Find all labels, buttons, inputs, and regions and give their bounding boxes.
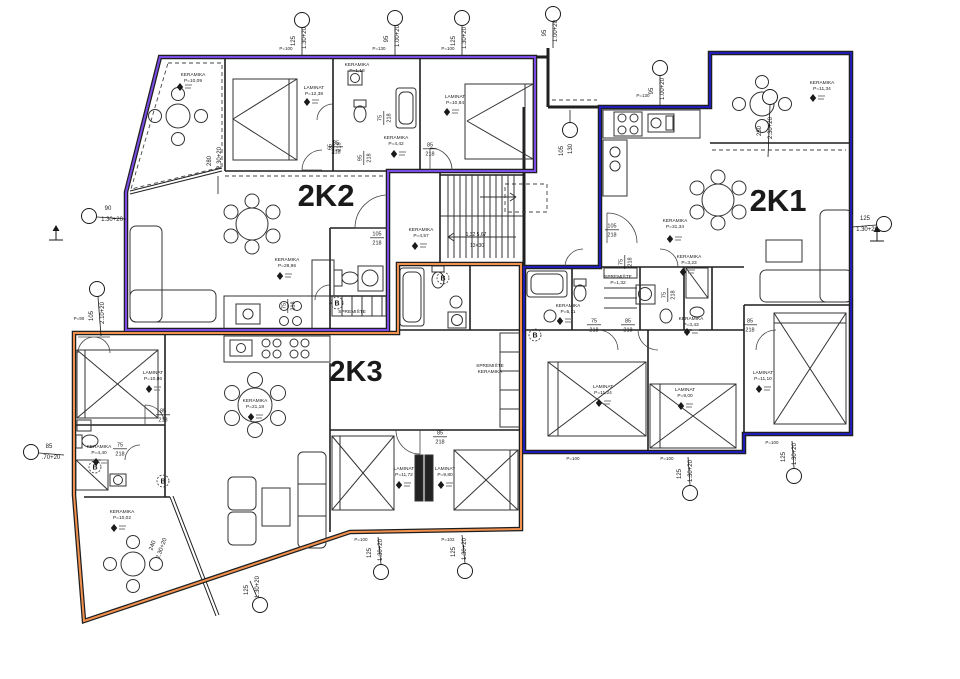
room-finish: KERAMIKA [679, 316, 705, 322]
door-size-label: 75218 [662, 288, 677, 302]
floor-symbol-icon [557, 317, 563, 325]
wardrobe [425, 455, 433, 501]
chair [266, 229, 280, 243]
room-label: KERAMIKAP=28,96 [275, 257, 301, 280]
svg-text:B: B [440, 276, 445, 283]
room-label: KERAMIKAP=1,18 [345, 62, 371, 74]
chair [756, 76, 769, 89]
chair [711, 170, 725, 184]
bed [233, 79, 297, 160]
room-label: LAMINATP=12,38 [304, 85, 325, 106]
marker-circle-icon [253, 598, 268, 613]
stairs-text: 1,32 5,67 [466, 232, 487, 238]
svg-text:75: 75 [378, 115, 384, 121]
room-area: P=1,32 [610, 280, 626, 286]
door-arc [660, 249, 678, 267]
room-finish: KERAMIKA [810, 80, 836, 86]
double-door-arcs [78, 337, 110, 353]
dimension-text: 105 [89, 310, 95, 321]
chair [195, 110, 208, 123]
door-arc [565, 249, 583, 267]
chair [127, 536, 140, 549]
armchair [228, 477, 256, 510]
svg-text:218: 218 [435, 440, 444, 446]
room-finish: KERAMIKA [345, 62, 371, 68]
wall-length-label: P=100 [765, 440, 779, 445]
marker-circle-icon [295, 13, 310, 28]
room-area: P=4,42 [388, 141, 404, 147]
room-area: P=11,10 [754, 376, 772, 382]
stove-burner [262, 350, 270, 358]
dimension-text: 1.30+20 [101, 217, 124, 223]
door-arc [317, 104, 333, 120]
svg-text:218: 218 [291, 301, 297, 310]
dimension-text: 2.30+20 [156, 537, 169, 560]
svg-text:218: 218 [337, 142, 343, 151]
room-area: P=5,11 [561, 309, 576, 315]
chair [224, 205, 238, 219]
door-arc [355, 195, 388, 228]
toilet [334, 270, 358, 286]
chair [149, 110, 162, 123]
dimension-text: 95 [542, 29, 548, 36]
floor-symbol-icon [438, 481, 444, 489]
room-finish: KERAMIKA [409, 227, 435, 233]
dimension-text: 1.30+20 [462, 537, 468, 560]
room-label: SPREMIŠTEKERAMIKA [476, 362, 504, 375]
washing-machine [448, 312, 466, 328]
door-size-label: 85218 [433, 431, 447, 446]
floor-plan-drawing: 2K12K22K3 KERAMIKAP=10,09LAMINATP=12,38K… [0, 0, 960, 679]
chair [224, 229, 238, 243]
door-arc [125, 445, 140, 460]
svg-text:218: 218 [589, 328, 598, 334]
room-finish: KERAMIKA [110, 509, 136, 515]
dining-table [702, 184, 734, 216]
dimension-text: 1.30+20 [688, 459, 694, 482]
svg-text:B: B [160, 479, 165, 486]
door-size-label: 105218 [370, 232, 384, 247]
closet-shelves [500, 333, 522, 427]
dimension-text: 1.30+20 [378, 538, 384, 561]
room-area: P=10,86 [144, 376, 162, 382]
stove-burner [262, 339, 270, 347]
floor-symbol-icon [111, 524, 117, 532]
svg-text:218: 218 [158, 418, 167, 424]
room-label: LAMINATP=11,72 [394, 466, 415, 489]
room-finish: LAMINAT [143, 370, 164, 376]
tall-unit [603, 140, 627, 196]
wall-length-label: P=102 [441, 537, 455, 542]
marker-circle-icon [787, 469, 802, 484]
room-label: LAMINATP=10,84 [444, 94, 465, 116]
door-arc [598, 330, 618, 350]
dimension-text: 280 [207, 155, 213, 166]
dimension-text: 1.00+20 [660, 77, 666, 100]
window-marker: 951.00+20 [542, 7, 561, 49]
chair [690, 205, 704, 219]
chair [711, 216, 725, 230]
floor-symbol-icon [146, 385, 152, 393]
svg-text:218: 218 [623, 328, 632, 334]
svg-text:B: B [334, 301, 339, 308]
marker-circle-icon [90, 282, 105, 297]
svg-text:75: 75 [282, 303, 288, 309]
chair [271, 411, 286, 426]
dimension-text: 125 [291, 35, 297, 46]
dimension-text: 1.30+20 [302, 26, 308, 49]
washbasin [544, 310, 556, 322]
marker-circle-icon [683, 486, 698, 501]
room-label: SPREMIŠTE [338, 308, 366, 315]
floor-symbol-icon [667, 235, 673, 243]
dimension-text: 2.30+20 [768, 116, 774, 139]
dimension-text: 240 [149, 539, 158, 551]
stove-burner [273, 350, 281, 358]
room-area: P=10,02 [113, 515, 131, 521]
room-finish: LAMINAT [435, 466, 456, 472]
chair [245, 194, 259, 208]
stairs-texts: 1,32 5,6713×30 [466, 232, 487, 249]
room-finish: LAMINAT [445, 94, 466, 100]
room-area: P=10,09 [184, 78, 202, 84]
toilet [354, 100, 366, 122]
room-label: KERAMIKAP=31,34 [663, 218, 689, 243]
door-arc [302, 150, 322, 170]
chair [127, 580, 140, 593]
wall-length-label: P=130 [372, 46, 386, 51]
room-finish: KERAMIKA [556, 303, 582, 309]
dimension-text: 125 [451, 35, 457, 46]
room-area: P=10,84 [446, 100, 464, 106]
door-size-label: 75218 [587, 319, 601, 334]
room-label: KERAMIKAP=3,23 [677, 254, 703, 276]
dashed-lines [131, 63, 846, 212]
door-size-label: 95218 [358, 151, 373, 165]
room-finish: KERAMIKA [87, 444, 113, 450]
level-marker-icon [49, 225, 63, 240]
dimension-text: 90 [105, 206, 112, 212]
dimension-text: 1.30+20 [462, 26, 468, 49]
toilet [660, 309, 672, 323]
terrace-table [121, 552, 145, 576]
floor-symbol-icon [412, 242, 418, 250]
marker-circle-icon [374, 565, 389, 580]
dimension-text: 85 [46, 444, 53, 450]
svg-text:218: 218 [372, 241, 381, 247]
wall-length-label: P=100 [354, 537, 368, 542]
chair [733, 98, 746, 111]
dimension-text: 95 [649, 87, 655, 94]
unit-label-2k1: 2K1 [750, 183, 807, 218]
unit-labels: 2K12K22K3 [298, 178, 807, 388]
stove-burner [273, 339, 281, 347]
room-label: SPREMIŠTEP=1,32 [604, 273, 632, 286]
stove-burner [293, 317, 302, 326]
dimension-text: 125 [244, 584, 250, 595]
bed [332, 436, 394, 510]
room-label: KERAMIKAP=10,09 [177, 72, 206, 91]
room-area: P=31,34 [666, 224, 684, 230]
wall-length-label: P=100 [441, 46, 455, 51]
marker-circle-icon [455, 11, 470, 26]
room-finish: LAMINAT [675, 387, 696, 393]
room-label: KERAMIKAP=4,57 [409, 227, 435, 250]
door-size-label: 75218 [113, 443, 127, 458]
marker-circle-icon [763, 90, 778, 105]
floor-symbol-icon [248, 413, 254, 421]
wall-length-label: P=100 [279, 46, 293, 51]
room-finish: LAMINAT [394, 466, 415, 472]
dimension-text: 125 [781, 451, 787, 462]
wall-length-label: P=90 [74, 316, 85, 321]
washing-machine [358, 266, 383, 291]
svg-text:75: 75 [662, 292, 668, 298]
svg-text:218: 218 [115, 452, 124, 458]
svg-text:75: 75 [117, 443, 123, 449]
chair [779, 98, 792, 111]
room-area: P=4,40 [91, 450, 107, 456]
chair [266, 205, 280, 219]
stove-burner [280, 317, 289, 326]
corner-sofa [760, 210, 852, 302]
room-finish: KERAMIKA [243, 398, 269, 404]
bed [650, 384, 736, 448]
circled-mark: B [437, 272, 449, 284]
room-label: LAMINATP=9,00 [675, 387, 696, 410]
marker-circle-icon [82, 209, 97, 224]
svg-text:218: 218 [628, 257, 634, 266]
bathtub [527, 271, 567, 297]
sink [230, 340, 252, 356]
room-finish: LAMINAT [304, 85, 325, 91]
room-area: P=3,23 [681, 260, 697, 266]
room-area: P=1,18 [349, 68, 365, 74]
floor-symbol-icon [596, 399, 602, 407]
svg-text:B: B [532, 333, 537, 340]
door-arc [756, 330, 776, 350]
window-marker: 901.30+20 [82, 206, 127, 224]
floor-symbol-icon [391, 150, 397, 158]
svg-text:85: 85 [747, 319, 753, 325]
svg-text:218: 218 [607, 233, 616, 239]
svg-text:218: 218 [367, 153, 373, 162]
window-marker: 2402.30+20 [149, 537, 169, 560]
room-label: LAMINATP=10,86 [143, 370, 164, 393]
coffee-table [262, 488, 290, 526]
floor-symbol-icon [304, 98, 310, 106]
window-marker: 1251.30+20 [244, 575, 268, 612]
coffee-table [766, 240, 802, 262]
room-area: P=4,57 [413, 233, 429, 239]
chair [732, 181, 746, 195]
room-finish: KERAMIKA [663, 218, 689, 224]
washbasin [690, 307, 704, 317]
dimension-text: 2.30+20 [217, 146, 223, 169]
dimension-text: 125 [451, 546, 457, 557]
svg-text:95: 95 [358, 155, 364, 161]
dimension-text: 2.10+20 [100, 301, 106, 324]
window-marker: 1251.30+20 [367, 537, 389, 580]
svg-text:75: 75 [619, 259, 625, 265]
room-finish: KERAMIKA [677, 254, 703, 260]
unit-label-2k3: 2K3 [329, 356, 382, 388]
room-labels: KERAMIKAP=10,09LAMINATP=12,38KERAMIKAP=1… [87, 62, 836, 532]
chair [225, 411, 240, 426]
window-marker: 951.00+20 [384, 11, 403, 56]
dimension-text: 95 [384, 35, 390, 42]
svg-text:85: 85 [625, 319, 631, 325]
bed [774, 313, 846, 424]
wall-length-label: P=130 [636, 93, 650, 98]
elevator-shaft [505, 184, 547, 212]
svg-text:65: 65 [328, 144, 334, 150]
room-finish: SPREMIŠTE [338, 308, 366, 315]
room-area: P=12,38 [305, 91, 323, 97]
chair [690, 181, 704, 195]
washing-machine [636, 285, 655, 304]
dimension-text: 1.00+20 [395, 24, 401, 47]
room-area: P=9,80 [437, 472, 453, 478]
door-size-label: 85218 [621, 319, 635, 334]
dimension-text: 280 [757, 125, 763, 136]
room-label: KERAMIKAP=4,42 [384, 135, 410, 158]
window-marker: 1251.30+20 [677, 457, 698, 501]
room-label: LAMINATP=9,80 [435, 466, 456, 489]
toilet [574, 279, 586, 301]
closet-shelves [604, 268, 637, 308]
room-label: LAMINATP=11,10 [753, 370, 774, 393]
dimension-text: 105 [559, 145, 565, 156]
svg-text:85: 85 [437, 431, 443, 437]
stair-arrow-up [480, 193, 516, 201]
floor-symbol-icon [396, 481, 402, 489]
room-finish: SPREMIŠTE [476, 362, 504, 369]
window-marker: 2802.30+20 [757, 90, 778, 158]
wardrobe [415, 455, 423, 501]
floor-symbol-icon [444, 108, 450, 116]
dimension-text: 125 [860, 216, 871, 222]
floor-symbol-icon [177, 83, 183, 91]
svg-text:85: 85 [160, 409, 166, 415]
floor-symbol-icon [277, 272, 283, 280]
room-finish: LAMINAT [593, 384, 614, 390]
room-finish: KERAMIKA [181, 72, 207, 78]
window-marker: 1251.30+20 [781, 441, 802, 484]
room-label: KERAMIKAP=3,43 [679, 316, 705, 336]
room-finish: SPREMIŠTE [604, 273, 632, 280]
room-area: P=28,96 [278, 263, 296, 269]
dimension-text: 125 [367, 547, 373, 558]
stairs-text: 13×30 [470, 243, 484, 249]
bathtub [400, 268, 424, 326]
dimension-text: .70+20 [42, 455, 61, 461]
dining-table [236, 208, 268, 240]
marker-circle-icon [458, 564, 473, 579]
dimension-text: 1.30+20 [792, 442, 798, 465]
door-arc [315, 285, 330, 300]
room-finish: KERAMIKA [384, 135, 410, 141]
wall-unit-2k3 [74, 264, 521, 621]
window-marker: 85.70+20 [24, 444, 65, 461]
chair [225, 386, 240, 401]
room-label: KERAMIKAP=11,34 [810, 80, 836, 102]
wall-length-label: P=100 [660, 456, 674, 461]
chair [172, 88, 185, 101]
room-label: KERAMIKAP=5,11 [556, 303, 582, 325]
sink [236, 304, 260, 324]
marker-circle-icon [653, 61, 668, 76]
svg-text:105: 105 [372, 232, 381, 238]
chair [271, 386, 286, 401]
washbasin [450, 296, 462, 308]
marker-circle-icon [546, 7, 561, 22]
window-marker: 105130 [559, 110, 578, 156]
bathtub [396, 88, 416, 128]
room-area: P=11,34 [813, 86, 831, 92]
unit-outline-2k3 [74, 264, 521, 621]
svg-text:218: 218 [745, 328, 754, 334]
svg-text:105: 105 [607, 224, 616, 230]
window-marker: 951.00+20 [649, 61, 668, 106]
svg-text:85: 85 [427, 143, 433, 149]
room-area: P=3,43 [683, 322, 699, 328]
room-area: P=9,00 [677, 393, 693, 399]
room-area: KERAMIKA [478, 369, 504, 375]
bed [454, 450, 518, 510]
svg-text:B: B [92, 465, 97, 472]
kitchen-counter [224, 260, 334, 330]
floor-symbol-icon [810, 94, 816, 102]
chair [732, 205, 746, 219]
floor-symbol-icon [680, 268, 686, 276]
chair [172, 133, 185, 146]
dimension-text: 125 [677, 468, 683, 479]
washbasin [110, 474, 126, 486]
svg-text:218: 218 [671, 290, 677, 299]
svg-text:218: 218 [387, 113, 393, 122]
circled-mark: B [157, 475, 169, 487]
chair [104, 558, 117, 571]
dimension-text: 1.00+20 [553, 19, 559, 42]
floor-symbol-icon [756, 385, 762, 393]
door-arc [396, 430, 420, 454]
sofa [298, 452, 326, 548]
kitchen-counter [603, 110, 700, 196]
room-area: P=21,18 [246, 404, 264, 410]
corner-sofa [130, 226, 216, 322]
window-marker: 1052.10+20 [89, 282, 106, 337]
exterior-walls [74, 48, 851, 621]
bed [548, 362, 646, 436]
bed [77, 350, 158, 418]
window-marker: 1251.30+20 [291, 13, 310, 56]
svg-text:218: 218 [425, 152, 434, 158]
door-size-label: 85218 [743, 319, 757, 334]
room-area: P=11,72 [395, 472, 413, 478]
dimension-text: 130 [568, 143, 574, 154]
chair [248, 423, 263, 438]
room-area: P=11,24 [594, 390, 612, 396]
chair [245, 240, 259, 254]
door-size-label: 75218 [378, 111, 393, 125]
kitchen-counter [224, 336, 330, 362]
room-finish: LAMINAT [753, 370, 774, 376]
marker-circle-icon [388, 11, 403, 26]
marker-circle-icon [563, 123, 578, 138]
room-finish: KERAMIKA [275, 257, 301, 263]
wall-length-label: P=100 [566, 456, 580, 461]
